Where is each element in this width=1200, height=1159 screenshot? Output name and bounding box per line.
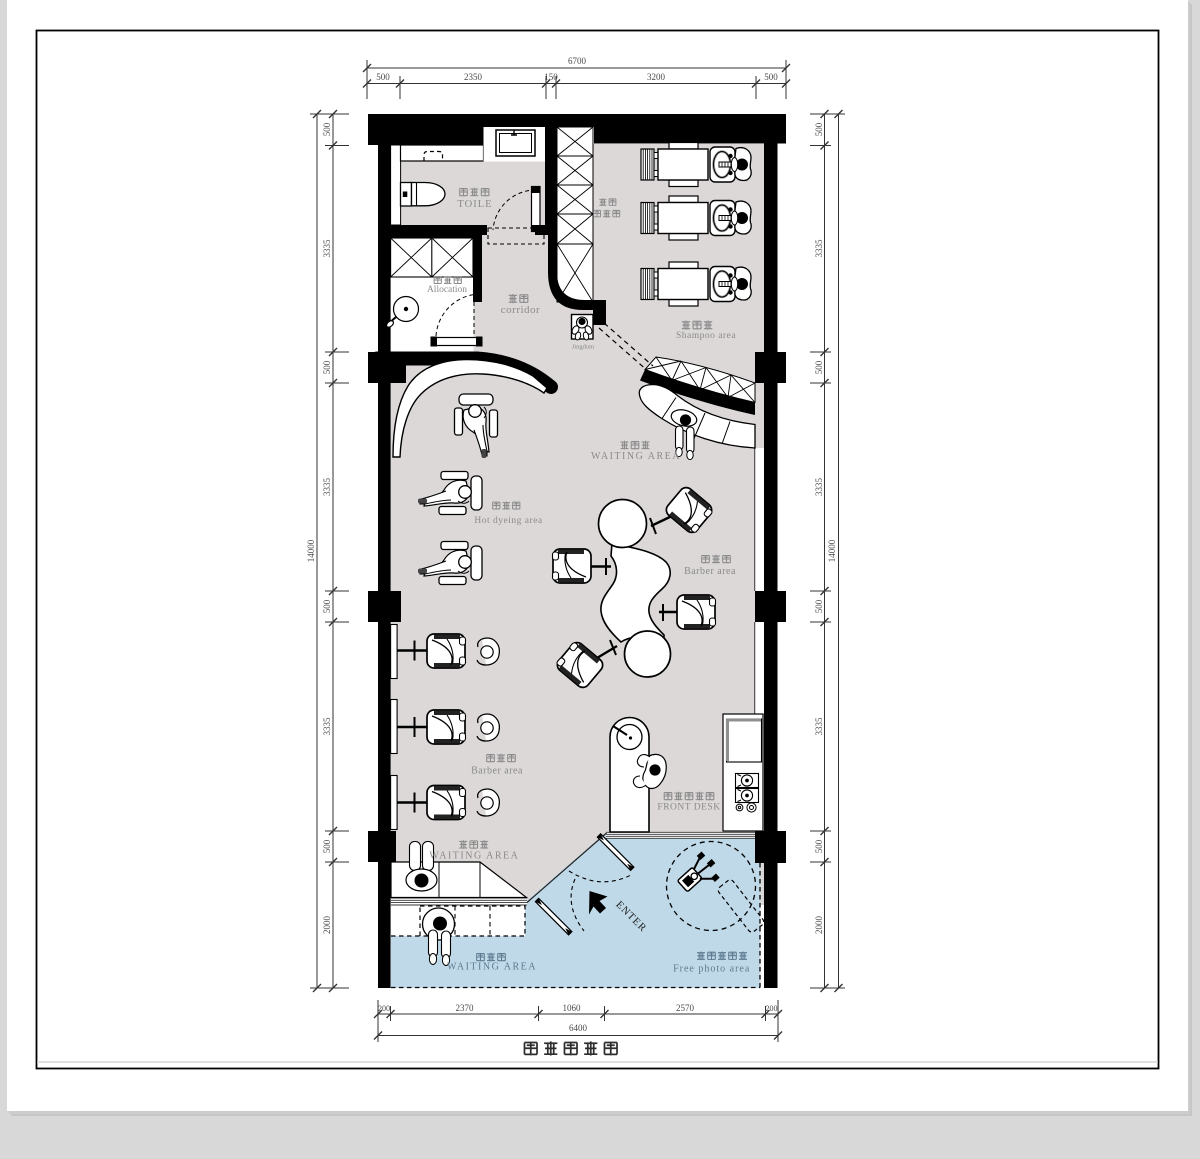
svg-text:3335: 3335 [814, 717, 824, 736]
svg-text:500: 500 [322, 360, 332, 374]
svg-text:14000: 14000 [306, 539, 316, 562]
svg-text:3335: 3335 [322, 717, 332, 736]
svg-text:3335: 3335 [322, 478, 332, 497]
svg-text:2000: 2000 [814, 916, 824, 935]
svg-text:500: 500 [322, 599, 332, 613]
svg-text:150: 150 [544, 72, 558, 82]
svg-text:500: 500 [322, 122, 332, 136]
svg-text:Shampoo area: Shampoo area [676, 331, 736, 341]
svg-text:500: 500 [322, 839, 332, 853]
svg-text:14000: 14000 [827, 539, 837, 562]
svg-text:2570: 2570 [676, 1003, 695, 1013]
svg-text:WAITING AREA: WAITING AREA [447, 962, 537, 973]
svg-text:200: 200 [766, 1004, 778, 1013]
svg-text:Hot dyeing area: Hot dyeing area [474, 516, 542, 526]
svg-text:FRONT DESK: FRONT DESK [657, 803, 720, 813]
svg-text:2350: 2350 [464, 72, 483, 82]
svg-text:Barber area: Barber area [471, 766, 523, 777]
svg-text:2370: 2370 [456, 1003, 475, 1013]
svg-text:500: 500 [764, 72, 778, 82]
svg-text:Barber area: Barber area [684, 566, 736, 577]
svg-text:6700: 6700 [568, 56, 587, 66]
svg-text:1060: 1060 [563, 1003, 582, 1013]
svg-text:Jingdum: Jingdum [572, 344, 594, 351]
svg-text:3200: 3200 [647, 72, 666, 82]
svg-text:2000: 2000 [322, 916, 332, 935]
svg-text:6400: 6400 [569, 1023, 588, 1033]
svg-text:200: 200 [378, 1004, 390, 1013]
svg-text:corridor: corridor [501, 304, 540, 316]
svg-text:3335: 3335 [814, 239, 824, 258]
svg-text:WAITING AREA: WAITING AREA [591, 451, 681, 462]
svg-text:500: 500 [814, 360, 824, 374]
svg-text:3335: 3335 [322, 239, 332, 258]
svg-text:Allocation: Allocation [427, 285, 467, 295]
svg-text:500: 500 [814, 839, 824, 853]
svg-text:WAITING AREA: WAITING AREA [429, 851, 519, 862]
svg-text:500: 500 [376, 72, 390, 82]
svg-text:Free photo area: Free photo area [673, 964, 750, 975]
svg-text:TOILE: TOILE [457, 199, 492, 210]
svg-text:500: 500 [814, 599, 824, 613]
svg-text:3335: 3335 [814, 478, 824, 497]
svg-text:500: 500 [814, 122, 824, 136]
